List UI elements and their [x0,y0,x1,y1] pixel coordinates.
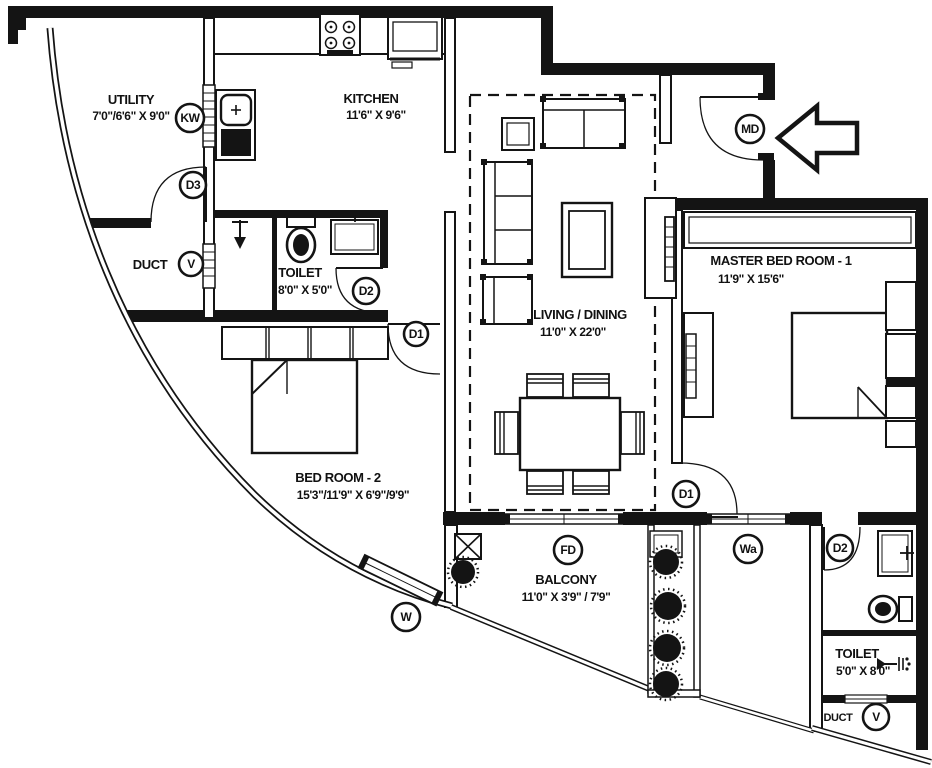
dining-chair [573,374,609,397]
bedroom2-label: BED ROOM - 2 [295,470,381,485]
kitchen-label: KITCHEN [344,91,399,106]
master-wardrobe [684,212,916,248]
marker-md: MD [736,115,764,143]
marker-w: W [392,603,420,631]
bedroom2-bed [252,360,357,453]
plant [650,631,684,665]
dining-chair [573,471,609,494]
bedroom2-wardrobe [222,327,388,359]
bedroom2-top-wall [126,310,388,322]
center-table [562,203,612,277]
sofa-three-seat [481,159,533,265]
sofa-two-seat [540,96,625,149]
toilet-common-label: TOILET [278,265,322,280]
toilet-master-partition [822,630,928,636]
dining-chair [495,412,518,454]
master-bedside-unit [886,282,916,447]
top-wall [8,6,553,44]
master-label: MASTER BED ROOM - 1 [710,253,851,268]
marker-v-left: V [179,252,203,276]
bottom-wall-seg1 [443,512,505,525]
marker-d3-label: D3 [186,178,201,192]
plant [651,589,685,623]
toilet-common-dims: 8'0" X 5'0" [278,283,332,297]
toilet-master-left-wall [810,525,822,731]
stove [320,14,360,55]
outline-slant-mid-inner [700,697,814,731]
utility-label: UTILITY [108,92,155,107]
living-label: LIVING / DINING [533,307,627,322]
kitchen-dims: 11'6" X 9'6" [346,108,406,122]
marker-d2-common-label: D2 [359,284,374,298]
bedroom2-right-wall [445,212,455,512]
toilet-master-right-wall [916,525,928,750]
floor-plan-page: UTILITY 7'0"/6'6" X 9'0" KITCHEN 11'6" X… [0,0,932,768]
wc-common [287,217,315,262]
marker-d1-bedroom2-label: D1 [409,327,424,341]
living-dims: 11'0" X 22'0" [540,325,606,339]
marker-v-master-label: V [872,710,880,724]
kitchen-sink [388,17,442,68]
bottom-wall-seg3 [790,512,822,525]
marker-v-left-label: V [187,257,195,271]
tv-unit-living [645,198,676,298]
duct-master-window [845,695,887,703]
master-window-wa [707,514,790,524]
master-bed [792,313,887,418]
utility-dims: 7'0"/6'6" X 9'0" [92,109,169,123]
lobby-left-wall [660,75,671,143]
marker-d2-common: D2 [353,278,379,304]
column-box [455,534,481,559]
marker-d1-master: D1 [673,481,699,507]
floor-plan-svg: UTILITY 7'0"/6'6" X 9'0" KITCHEN 11'6" X… [0,0,932,768]
marker-d2-master-label: D2 [833,541,848,555]
duct-left-top-wall-a [90,218,151,228]
bedroom2-furniture [222,327,388,453]
marker-wa: Wa [734,535,762,563]
duct-left-label: DUCT [133,257,168,272]
marker-d3: D3 [180,172,206,198]
duct-master-label: DUCT [824,712,854,724]
marker-d1-bedroom2: D1 [404,322,428,346]
duct-master-slant-inner [812,728,931,762]
toilet-common-right-wall [380,218,388,268]
washbasin-master [878,531,914,576]
master-top-wall [672,198,928,210]
kitchen-right-wall [445,18,455,152]
wc-master [869,596,912,622]
toilet-master-dims: 5'0" X 8'0" [836,664,890,678]
duct-left-vent-window [203,244,215,288]
marker-w-label: W [401,610,413,624]
dining-chair [621,412,644,454]
shower-common [232,220,248,249]
marker-fd-label: FD [560,543,576,557]
master-right-wall [916,210,928,525]
kitchen-fixtures [214,14,445,160]
marker-d1-master-label: D1 [679,487,694,501]
marker-fd: FD [554,536,582,564]
balcony-window-fd [505,514,623,524]
marker-md-label: MD [741,122,760,136]
toilet-master-label: TOILET [835,646,879,661]
marker-d2-master: D2 [827,535,853,561]
master-furniture [684,212,916,447]
toilet-common-partition [272,218,277,313]
balcony-dims: 11'0" X 3'9" / 7'9" [522,590,611,604]
wash-unit [216,90,255,160]
marker-v-master: V [863,704,889,730]
marker-kw: KW [176,104,204,132]
top-right-wall [541,63,775,75]
entrance-arrow-icon [778,106,857,170]
marker-wa-label: Wa [740,542,757,556]
side-table [502,118,534,150]
master-dims: 11'9" X 15'6" [718,272,784,286]
entry-door-stop-bottom [758,153,774,160]
dining-chair [527,374,563,397]
balcony-slant-inner [451,607,652,690]
dining-chair [527,471,563,494]
bottom-wall-seg4 [858,512,928,525]
bottom-wall-seg2 [623,512,707,525]
sofa-single [480,274,533,325]
balcony-label: BALCONY [535,572,597,587]
bedroom2-dims: 15'3"/11'9" X 6'9"/9'9" [297,488,409,502]
marker-kw-label: KW [180,111,200,125]
living-furniture [480,96,676,494]
master-dresser-tv [684,313,713,417]
dining-table [520,398,620,470]
